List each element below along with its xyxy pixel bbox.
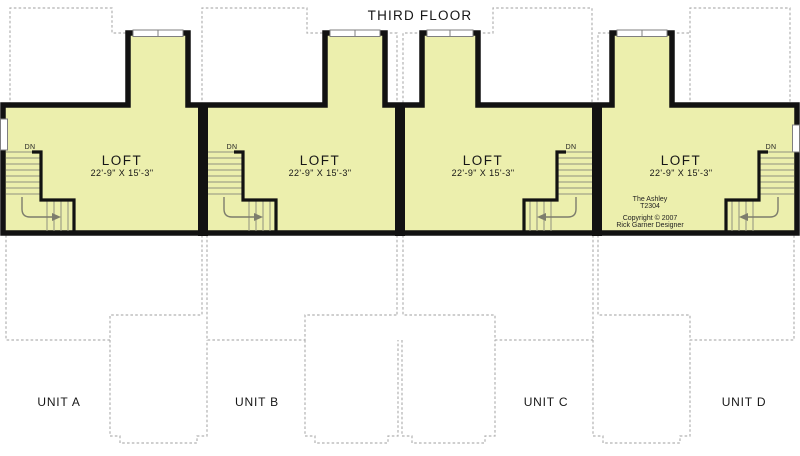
plan-code: T2304 xyxy=(616,203,683,210)
room-dimensions-unit-c: 22'-9" X 15'-3" xyxy=(452,168,515,178)
room-dimensions-unit-b: 22'-9" X 15'-3" xyxy=(289,168,352,178)
garage-outline-unit-b xyxy=(305,340,398,443)
room-dimensions-unit-a: 22'-9" X 15'-3" xyxy=(91,168,154,178)
party-wall-c-d xyxy=(592,103,602,236)
plan-name: The Ashley xyxy=(616,196,683,203)
stair-dn-label-unit-b: DN xyxy=(227,144,238,151)
party-wall-a-b xyxy=(198,103,208,236)
unit-label-b: UNIT B xyxy=(235,395,279,409)
dormer-windows xyxy=(133,30,667,37)
stair-dn-label-unit-c: DN xyxy=(566,144,577,151)
room-label-unit-c: LOFT xyxy=(463,153,504,168)
stair-dn-label-unit-d: DN xyxy=(766,144,777,151)
unit-label-a: UNIT A xyxy=(37,395,80,409)
garage-outline-unit-d xyxy=(593,340,690,443)
garage-outline-unit-a xyxy=(110,340,207,443)
side-window-left xyxy=(1,119,8,150)
party-wall-b-c xyxy=(395,103,405,236)
side-window-right xyxy=(793,125,800,152)
roofline-dashed-lower xyxy=(6,235,794,443)
stair-dn-label-unit-a: DN xyxy=(25,144,36,151)
room-label-unit-a: LOFT xyxy=(102,153,143,168)
unit-label-d: UNIT D xyxy=(722,395,767,409)
plan-copyright-block: The Ashley T2304 Copyright © 2007 Rick G… xyxy=(616,196,683,234)
room-label-unit-d: LOFT xyxy=(661,153,702,168)
floor-plan-page: THIRD FLOOR LOFT 22'-9" X 15'-3" DN LOFT… xyxy=(0,0,800,456)
garage-outline-unit-c xyxy=(402,340,495,443)
page-title: THIRD FLOOR xyxy=(368,8,473,23)
room-dimensions-unit-d: 22'-9" X 15'-3" xyxy=(650,168,713,178)
plan-designer: Rick Garner Designer xyxy=(616,222,683,229)
unit-label-c: UNIT C xyxy=(524,395,569,409)
plan-copyright: Copyright © 2007 xyxy=(616,215,683,222)
room-label-unit-b: LOFT xyxy=(300,153,341,168)
